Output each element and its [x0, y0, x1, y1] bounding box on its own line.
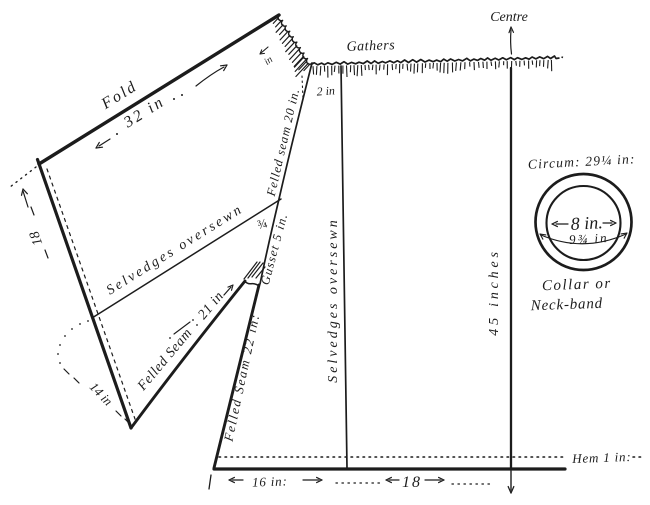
svg-text:2 in: 2 in — [316, 83, 335, 98]
svg-text:16 in:: 16 in: — [252, 473, 288, 489]
svg-text:Gathers: Gathers — [346, 38, 395, 55]
svg-text:Neck-band: Neck-band — [530, 296, 604, 315]
svg-text:45 inches: 45 inches — [487, 248, 502, 335]
svg-text:9¾ in: 9¾ in — [569, 230, 609, 247]
svg-text:18: 18 — [402, 474, 422, 491]
svg-text:Selvedges oversewn: Selvedges oversewn — [326, 217, 341, 383]
svg-text:Hem 1 in:: Hem 1 in: — [571, 449, 632, 466]
svg-text:Centre: Centre — [490, 10, 528, 25]
svg-text:Collar or: Collar or — [542, 276, 612, 294]
